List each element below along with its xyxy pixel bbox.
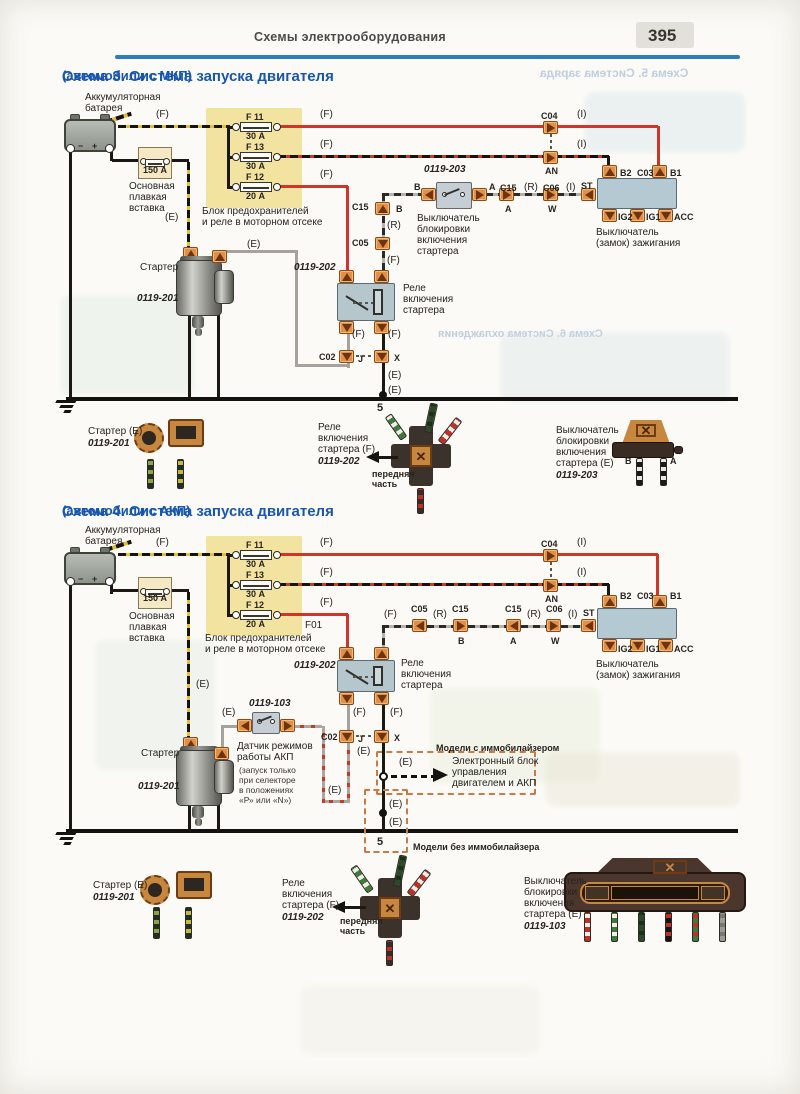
diagram-label: (F) <box>320 110 333 120</box>
diagram-label: 20 А <box>246 619 265 629</box>
diagram-label: C04 <box>541 111 558 121</box>
diagram-label: C05 <box>411 604 428 614</box>
diagram-label: (E) <box>165 213 178 223</box>
wire <box>69 150 72 399</box>
diagram-label: ST <box>583 608 595 618</box>
diagram-label: AN <box>545 166 558 176</box>
diagram-label: стартера (F) <box>282 901 339 911</box>
connector <box>652 595 667 608</box>
diagram-label: (E) <box>196 680 209 690</box>
connector <box>214 747 229 760</box>
diagram-label: часть <box>372 479 397 489</box>
d-arrow-icon <box>661 642 671 650</box>
connector <box>543 549 558 562</box>
starter-shaft <box>192 316 204 328</box>
wire <box>561 625 581 628</box>
connector <box>374 730 389 743</box>
terminal <box>270 719 275 724</box>
ground-icon <box>59 405 74 408</box>
u-arrow-icon <box>342 650 352 658</box>
starter-tip <box>195 328 202 336</box>
wire <box>187 162 190 248</box>
diagram-label: плавкая <box>129 623 167 633</box>
diagram-label: Аккумуляторная <box>85 526 161 536</box>
diagram-label: Выключатель <box>596 660 659 670</box>
wire <box>118 553 228 556</box>
diagram-label: A <box>489 182 496 192</box>
diagram-label: F 11 <box>246 112 264 122</box>
diagram-label: (F) <box>352 330 365 340</box>
terminal <box>232 123 240 131</box>
diagram-label: 150 А <box>143 593 167 603</box>
diagram-label: 0119-202 <box>318 457 360 467</box>
diagram-label: 0119-202 <box>294 661 336 671</box>
diagram-label: IG2 <box>618 644 633 654</box>
diagram-label: 0119-201 <box>88 439 130 449</box>
connector <box>602 639 617 652</box>
diagram-label: блокировки <box>417 225 470 235</box>
ground-icon <box>55 832 77 835</box>
u-arrow-icon <box>377 650 387 658</box>
wire <box>188 316 191 398</box>
diagram-label: 0119-202 <box>294 263 336 273</box>
u-arrow-icon <box>655 168 665 176</box>
relay-coil <box>373 289 383 315</box>
diagram-canvas: Схемы электрооборудования 395 Схема 5. С… <box>0 0 800 1094</box>
connector <box>374 692 389 705</box>
wire <box>353 302 373 304</box>
wire <box>656 554 659 596</box>
u-arrow-icon <box>217 750 227 758</box>
d-arrow-icon <box>605 212 615 220</box>
diagram-label: плавкая <box>129 193 167 203</box>
diagram-label: J <box>358 354 363 364</box>
junction-dot <box>379 809 387 817</box>
diagram-label: включения <box>401 670 451 680</box>
l-arrow-icon <box>416 621 424 631</box>
wire-pin <box>692 912 699 942</box>
diagram-label: 0119-202 <box>282 913 324 923</box>
wire <box>278 553 658 556</box>
d-arrow-icon <box>342 353 352 361</box>
l-arrow-icon <box>585 190 593 200</box>
diagram-label: X <box>394 353 400 363</box>
wire-pin <box>417 488 424 514</box>
diagram-label: IG2 <box>618 212 633 222</box>
diagram-label: (E) <box>328 786 341 796</box>
wire <box>657 126 660 166</box>
ghost-bleed-text-top: Схема 5. Система заряда <box>540 66 688 80</box>
legend-103-cell <box>585 886 609 900</box>
diagram-label: (запуск только <box>239 765 296 775</box>
wire <box>221 725 224 749</box>
wire-pin <box>147 459 154 489</box>
cross-connector-core: ✕ <box>410 445 432 467</box>
wire <box>188 806 191 831</box>
wire <box>347 334 350 350</box>
diagram-label: (I) <box>577 140 586 150</box>
wire-pin <box>665 912 672 942</box>
d-arrow-icon <box>342 733 352 741</box>
wire <box>382 193 422 196</box>
connector <box>543 121 558 134</box>
diagram-label: Основная <box>129 182 175 192</box>
battery-plus-mark: + <box>92 574 97 584</box>
diagram-label: (I) <box>566 183 575 193</box>
diagram-label: (R) <box>433 610 447 620</box>
diagram-label: C15 <box>452 604 469 614</box>
connector <box>506 619 521 632</box>
diagram-label: B1 <box>670 168 682 178</box>
ground-icon <box>55 400 77 403</box>
diagram-label: (R) <box>527 610 541 620</box>
wire-pin <box>636 458 643 486</box>
wire-pin <box>719 912 726 942</box>
diagram-label: (замок) зажигания <box>596 239 680 249</box>
diagram-label: IG1 <box>646 212 661 222</box>
diagram-label: B <box>414 182 421 192</box>
diagram-label: включения <box>556 448 606 458</box>
ghost-bleed-patch <box>500 332 730 402</box>
wire <box>346 614 349 648</box>
wire <box>347 705 350 730</box>
wire-pin <box>638 912 645 942</box>
junction-dot <box>379 772 388 781</box>
wire <box>118 125 228 128</box>
l-arrow-icon <box>585 621 593 631</box>
terminal <box>66 144 75 153</box>
diagram-label: B2 <box>620 591 632 601</box>
diagram-label: стартера (E) <box>524 910 582 920</box>
ghost-bleed-patch <box>545 752 740 807</box>
diagram-label: (F) <box>320 598 333 608</box>
terminal <box>105 144 114 153</box>
diagram-label: передняя <box>372 469 415 479</box>
diagram-label: (R) <box>387 221 401 231</box>
diagram-label: F 12 <box>246 172 264 182</box>
diagram-label: включения <box>282 890 332 900</box>
diagram-label: C04 <box>541 539 558 549</box>
wire <box>346 186 349 271</box>
l-arrow-icon <box>425 190 433 200</box>
terminal <box>273 611 281 619</box>
diagram-label: блокировки <box>556 437 609 447</box>
wire <box>112 589 140 592</box>
diagram-label: (E) <box>389 818 402 828</box>
wire <box>112 159 140 162</box>
schema3-title-sub: (автомобили с МКП) <box>62 68 192 83</box>
battery-minus-mark: − <box>78 141 83 151</box>
wire <box>353 676 373 678</box>
u-arrow-icon <box>605 598 615 606</box>
d-arrow-icon <box>377 353 387 361</box>
diagram-label: B2 <box>620 168 632 178</box>
diagram-label: и реле в моторном отсеке <box>202 218 322 228</box>
diagram-label: 150 А <box>143 165 167 175</box>
d-arrow-icon <box>633 642 643 650</box>
diagram-label: (F) <box>387 256 400 266</box>
u-arrow-icon <box>342 273 352 281</box>
terminal <box>232 153 240 161</box>
terminal <box>232 581 240 589</box>
diagram-label: C15 <box>352 202 369 212</box>
wire <box>550 562 552 579</box>
diagram-label: 30 А <box>246 589 265 599</box>
connector <box>375 202 390 215</box>
diagram-label: C03 <box>637 591 654 601</box>
d-arrow-icon <box>377 695 387 703</box>
diagram-label: Основная <box>129 612 175 622</box>
terminal <box>273 123 281 131</box>
diagram-label: (F) <box>384 610 397 620</box>
diagram-label: Стартер <box>140 263 178 273</box>
diagram-label: B <box>625 456 632 466</box>
terminal <box>232 611 240 619</box>
diagram-label: часть <box>340 926 365 936</box>
connector <box>339 350 354 363</box>
wire-pin <box>407 869 432 898</box>
r-arrow-icon <box>550 621 558 631</box>
wire-pin <box>153 907 160 939</box>
diagram-label: (E) <box>389 800 402 810</box>
connector <box>339 647 354 660</box>
r-arrow-icon <box>457 621 465 631</box>
diagram-label: (E) <box>388 371 401 381</box>
legend-203-tab <box>674 446 683 454</box>
diagram-label: C02 <box>319 352 336 362</box>
ground-icon <box>63 842 72 845</box>
diagram-label: Выключатель <box>417 214 480 224</box>
diagram-label: Стартер <box>141 749 179 759</box>
diagram-label: Блок предохранителей <box>202 207 309 217</box>
wire <box>468 625 506 628</box>
diagram-label: включения <box>318 434 368 444</box>
diagram-label: включения <box>403 295 453 305</box>
u-arrow-icon <box>378 205 388 213</box>
wire <box>347 363 350 368</box>
legend-103-cell <box>611 886 699 900</box>
diagram-label: F 13 <box>246 142 264 152</box>
connector <box>472 188 487 201</box>
diagram-label: Стартер (E) <box>88 427 142 437</box>
diagram-label: 5 <box>377 403 383 413</box>
diagram-label: вставка <box>129 634 165 644</box>
wire <box>278 155 609 158</box>
diagram-label: 0119-103 <box>524 922 566 932</box>
battery-terminal <box>70 114 80 120</box>
connector <box>374 647 389 660</box>
diagram-label: (F) <box>320 170 333 180</box>
diagram-label: батарея <box>85 537 122 547</box>
connector <box>339 692 354 705</box>
wire <box>66 397 738 401</box>
connector <box>453 619 468 632</box>
wire-pin <box>611 912 618 942</box>
terminal <box>66 577 75 586</box>
diagram-label: F 12 <box>246 600 264 610</box>
battery-plus-mark: + <box>92 141 97 151</box>
manual-page: Схемы электрооборудования 395 Схема 5. С… <box>0 0 800 1094</box>
diagram-label: стартера <box>417 247 459 257</box>
diagram-label: вставка <box>129 204 165 214</box>
diagram-label: 30 А <box>246 161 265 171</box>
r-arrow-icon <box>547 551 555 561</box>
starter-solenoid <box>214 760 234 794</box>
diagram-label: 30 А <box>246 131 265 141</box>
diagram-label: стартера (E) <box>556 459 614 469</box>
wire <box>486 193 500 196</box>
connector <box>421 188 436 201</box>
diagram-label: B <box>396 204 403 214</box>
d-arrow-icon <box>342 695 352 703</box>
legend-103-core: ✕ <box>653 860 687 874</box>
diagram-label: AN <box>545 594 558 604</box>
diagram-label: и реле в моторном отсеке <box>205 645 325 655</box>
wire <box>222 725 238 728</box>
d-arrow-icon <box>633 212 643 220</box>
diagram-label: A <box>510 636 517 646</box>
legend-103-cell <box>701 886 725 900</box>
diagram-label: 20 А <box>246 191 265 201</box>
wire <box>295 364 349 367</box>
diagram-label: C03 <box>637 168 654 178</box>
terminal <box>460 192 465 197</box>
r-arrow-icon <box>547 153 555 163</box>
diagram-label: 0119-201 <box>138 782 180 792</box>
u-arrow-icon <box>655 598 665 606</box>
wire <box>278 185 348 188</box>
diagram-label: управления <box>452 768 507 778</box>
wire <box>382 705 385 730</box>
legend-203-band <box>612 442 674 458</box>
diagram-label: (E) <box>388 386 401 396</box>
d-arrow-icon <box>661 212 671 220</box>
diagram-label: Датчик режимов <box>237 742 313 752</box>
wire <box>278 583 609 586</box>
starter-shaft <box>192 806 204 818</box>
connector <box>602 595 617 608</box>
d-arrow-icon <box>377 324 387 332</box>
diagram-label: стартера <box>403 306 445 316</box>
wire <box>550 134 552 151</box>
connector <box>212 250 227 263</box>
diagram-label: (I) <box>577 568 586 578</box>
terminal <box>232 551 240 559</box>
wire-pin <box>385 413 408 441</box>
battery-terminal <box>100 547 110 553</box>
ghost-bleed-patch <box>585 92 745 152</box>
diagram-label: (R) <box>524 183 538 193</box>
diagram-label: J <box>358 734 363 744</box>
wire <box>278 125 658 128</box>
connector <box>652 165 667 178</box>
wire-pin <box>393 855 407 888</box>
diagram-label: Реле <box>403 284 426 294</box>
diagram-label: W <box>548 204 557 214</box>
diagram-label: (F) <box>156 110 169 120</box>
diagram-label: Реле <box>318 423 341 433</box>
connector <box>543 151 558 164</box>
diagram-label: в положениях <box>239 785 293 795</box>
diagram-label: стартера <box>401 681 443 691</box>
diagram-label: (F) <box>156 538 169 548</box>
wire <box>382 334 385 350</box>
d-arrow-icon <box>377 733 387 741</box>
r-arrow-icon <box>284 721 292 731</box>
diagram-label: Блок предохранителей <box>205 634 312 644</box>
round-connector-core <box>148 883 162 897</box>
rect-connector-core <box>184 878 204 891</box>
l-arrow-icon <box>241 721 249 731</box>
connector <box>280 719 295 732</box>
diagram-label: блокировки <box>524 888 577 898</box>
diagram-label: (E) <box>247 240 260 250</box>
diagram-label: F01 <box>305 621 322 631</box>
connector <box>581 619 596 632</box>
diagram-label: 0119-103 <box>249 699 291 709</box>
ecu-arrow-icon <box>433 768 448 782</box>
terminal <box>232 183 240 191</box>
diagram-label: стартера (F) <box>318 445 375 455</box>
round-connector-core <box>142 431 156 445</box>
u-arrow-icon <box>377 273 387 281</box>
wire <box>521 625 546 628</box>
diagram-label: C06 <box>543 183 560 193</box>
diagram-label: C15 <box>505 604 522 614</box>
diagram-label: Реле <box>401 659 424 669</box>
battery-minus-mark: − <box>78 574 83 584</box>
diagram-label: C05 <box>352 238 369 248</box>
page-number: 395 <box>648 26 676 46</box>
wire <box>278 613 348 616</box>
r-arrow-icon <box>547 581 555 591</box>
diagram-label: F 13 <box>246 570 264 580</box>
diagram-label: (E) <box>222 708 235 718</box>
connector <box>543 579 558 592</box>
diagram-label: C15 <box>500 183 517 193</box>
diagram-label: ACC <box>674 212 694 222</box>
diagram-label: 5 <box>377 837 383 847</box>
diagram-label: Выключатель <box>556 426 619 436</box>
diagram-label: (замок) зажигания <box>596 671 680 681</box>
diagram-label: 30 А <box>246 559 265 569</box>
rect-connector-core <box>176 426 196 439</box>
wire <box>344 906 366 909</box>
ignition-switch-box <box>597 608 677 639</box>
header-rule <box>115 55 740 59</box>
diagram-label: передняя <box>340 916 383 926</box>
connector <box>602 165 617 178</box>
wire <box>513 193 543 196</box>
r-arrow-icon <box>476 190 484 200</box>
wire <box>187 592 190 738</box>
diagram-label: при селекторе <box>239 775 296 785</box>
battery-terminal <box>70 547 80 553</box>
wire <box>382 251 385 271</box>
wire <box>293 725 322 728</box>
diagram-label: B <box>458 636 465 646</box>
ground-icon <box>59 837 74 840</box>
wire <box>69 583 72 831</box>
wire <box>322 800 350 803</box>
starter-solenoid <box>214 270 234 304</box>
wire <box>382 216 385 237</box>
diagram-label: (F) <box>353 708 366 718</box>
connector <box>375 237 390 250</box>
connector <box>237 719 252 732</box>
terminal <box>273 183 281 191</box>
terminal <box>163 158 170 165</box>
